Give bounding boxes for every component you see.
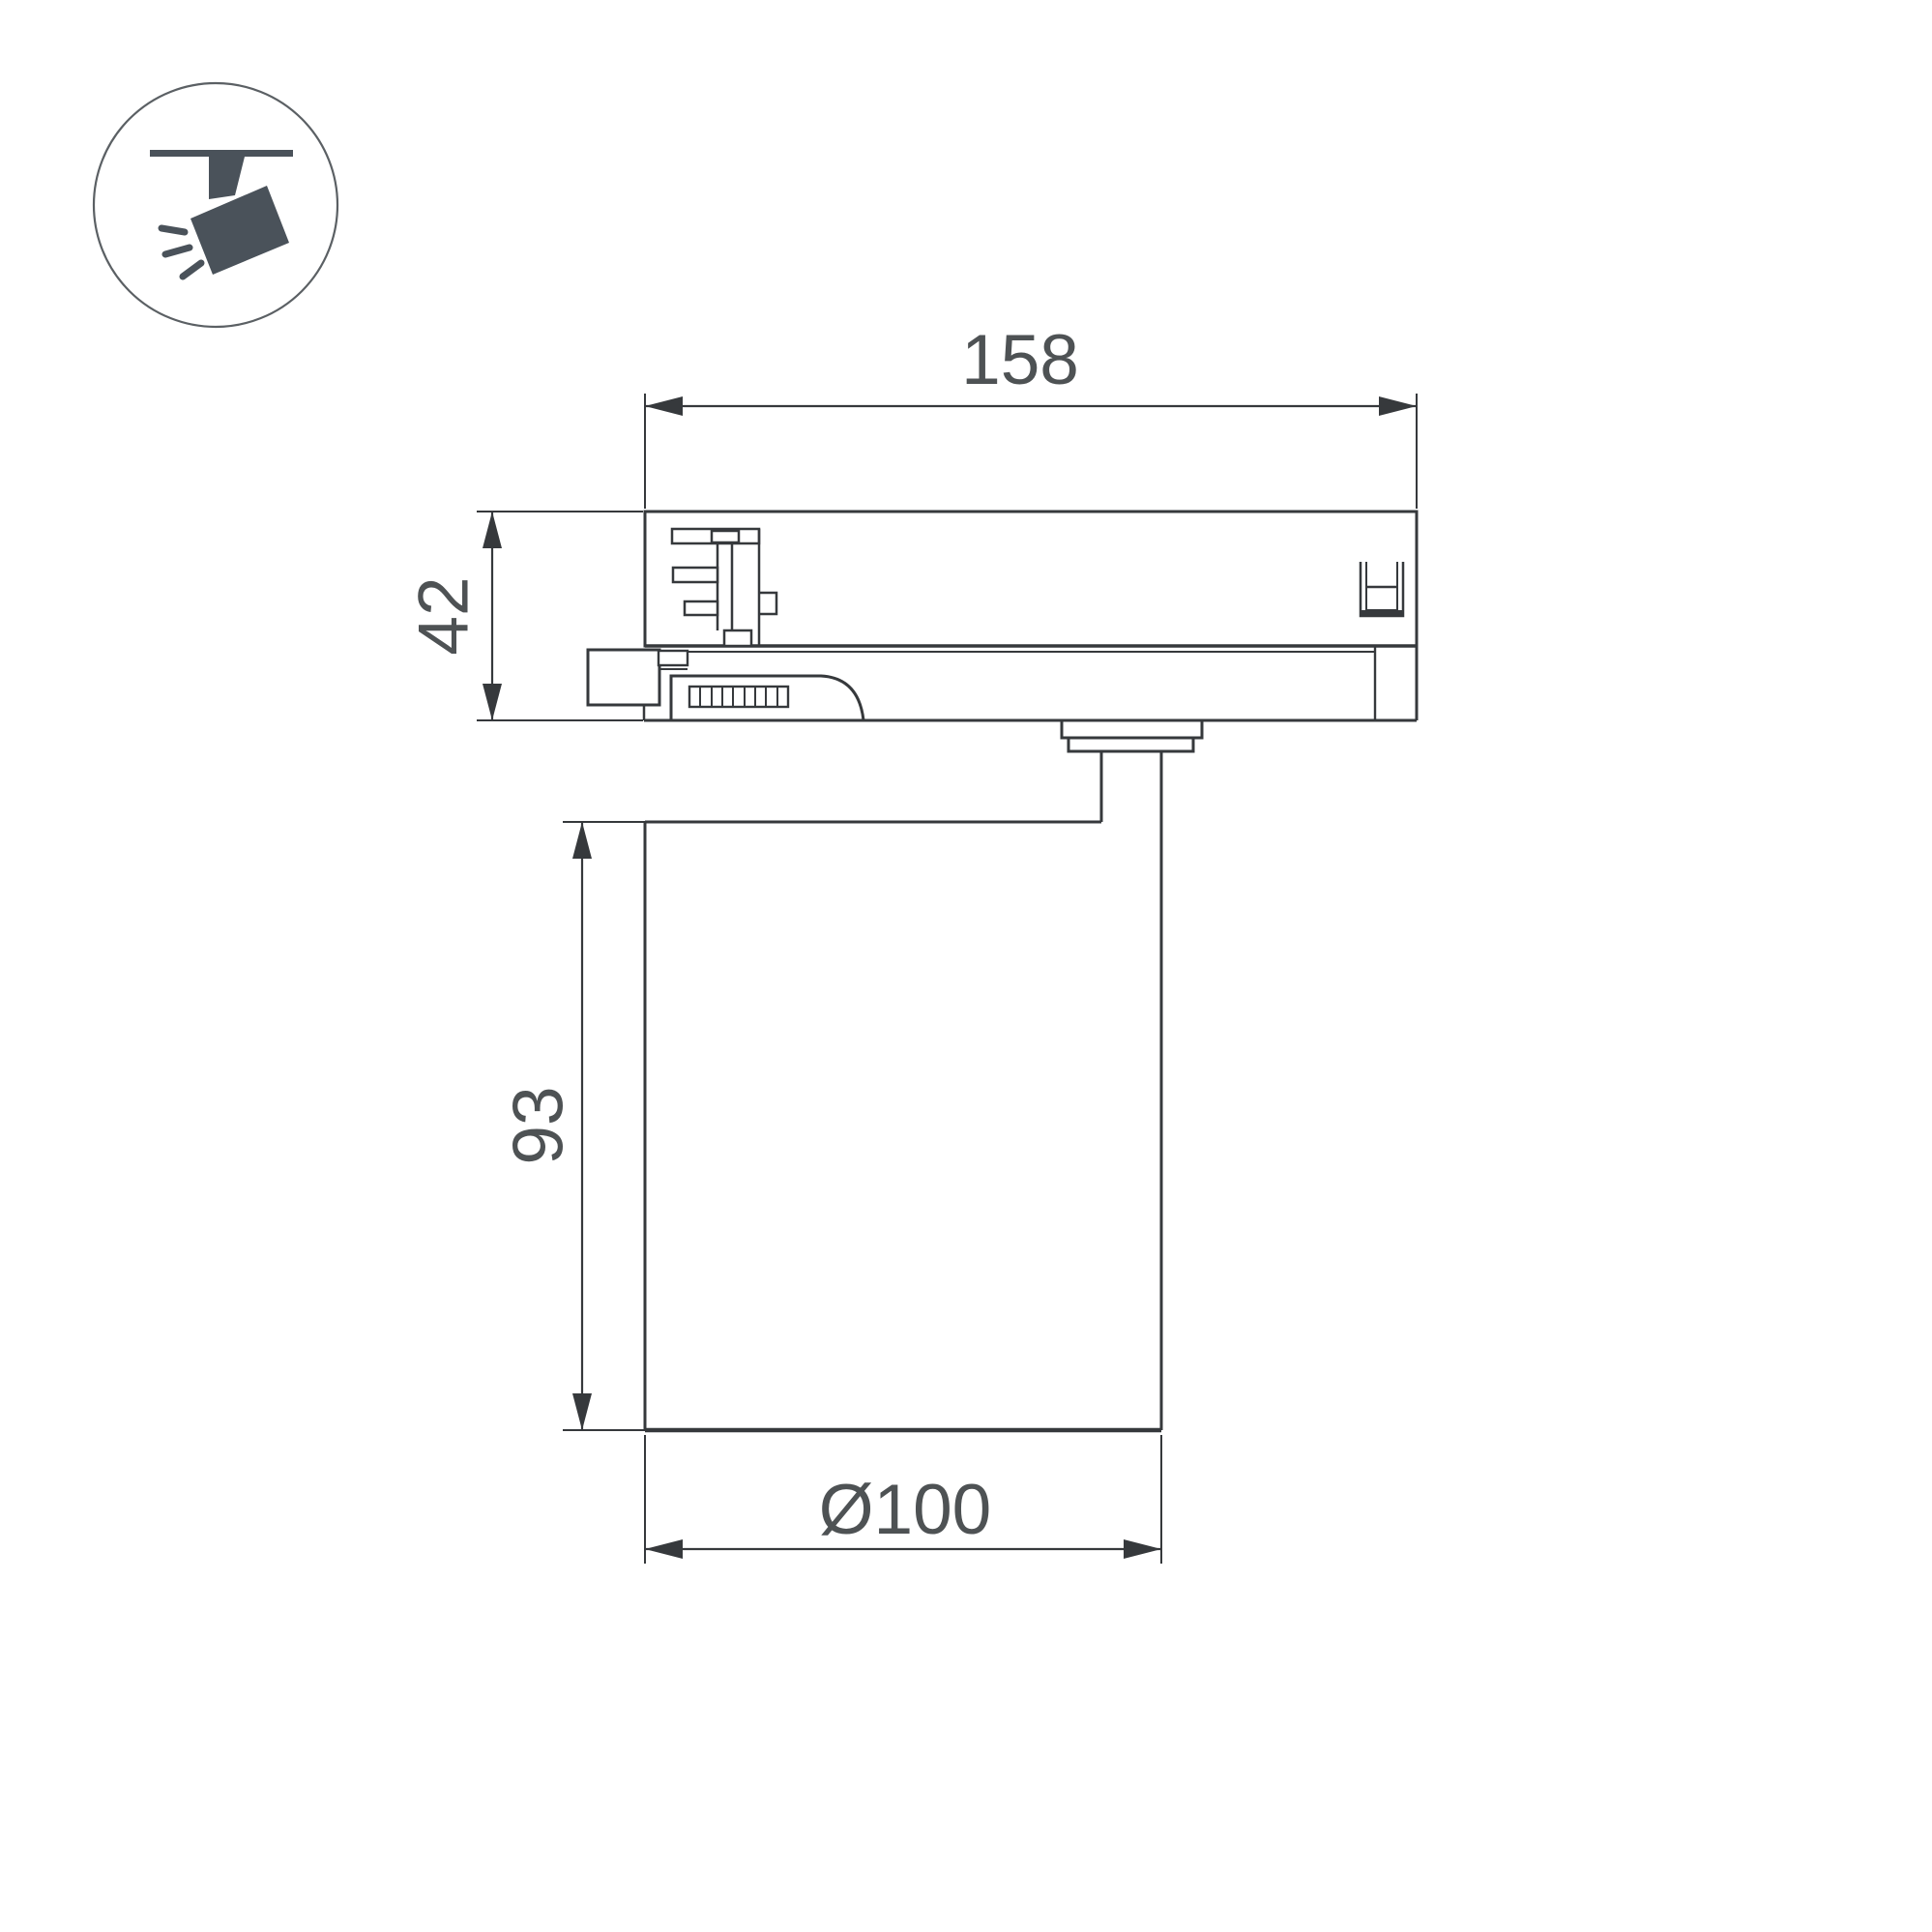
dimension-label-93: 93 — [500, 1086, 578, 1164]
track-light-icon — [94, 83, 337, 327]
connector-foot — [724, 630, 751, 646]
icon-circle-border — [94, 83, 337, 327]
icon-track-bar — [150, 150, 293, 157]
contact-prong-middle — [673, 568, 717, 582]
track-adapter-outline — [645, 512, 1417, 652]
arrowhead-right — [1379, 396, 1417, 416]
gear-housing — [588, 646, 1417, 720]
arrowhead-right — [1124, 1539, 1161, 1559]
clip-base — [1360, 610, 1404, 617]
latch-clip-detail — [659, 651, 688, 669]
arrowhead-up — [572, 822, 592, 859]
contact-prong-bottom — [685, 601, 717, 615]
dimension-diameter-100: Ø100 — [645, 1435, 1161, 1564]
adapter-box — [645, 512, 1417, 646]
technical-drawing: 158 42 — [0, 0, 1932, 1932]
dimension-label-42: 42 — [405, 576, 483, 655]
dip-switch — [689, 687, 788, 707]
arrowhead-left — [645, 1539, 683, 1559]
swivel-stem — [1062, 720, 1202, 822]
lamp-body-cylinder — [645, 822, 1161, 1430]
arrowhead-down — [483, 684, 502, 720]
arrowhead-left — [645, 396, 683, 416]
latch-handle — [588, 650, 659, 705]
arrowhead-down — [572, 1393, 592, 1430]
dimension-label-158: 158 — [961, 321, 1079, 399]
screw-cap — [712, 531, 739, 542]
dimension-height-93: 93 — [500, 822, 645, 1430]
drawing-page: 158 42 — [0, 0, 1932, 1932]
arrowhead-up — [483, 512, 502, 548]
dimension-width-158: 158 — [645, 321, 1417, 509]
dimension-label-diameter-100: Ø100 — [819, 1471, 992, 1549]
mount-plate-upper — [1062, 720, 1202, 738]
mount-plate-lower — [1068, 738, 1193, 751]
